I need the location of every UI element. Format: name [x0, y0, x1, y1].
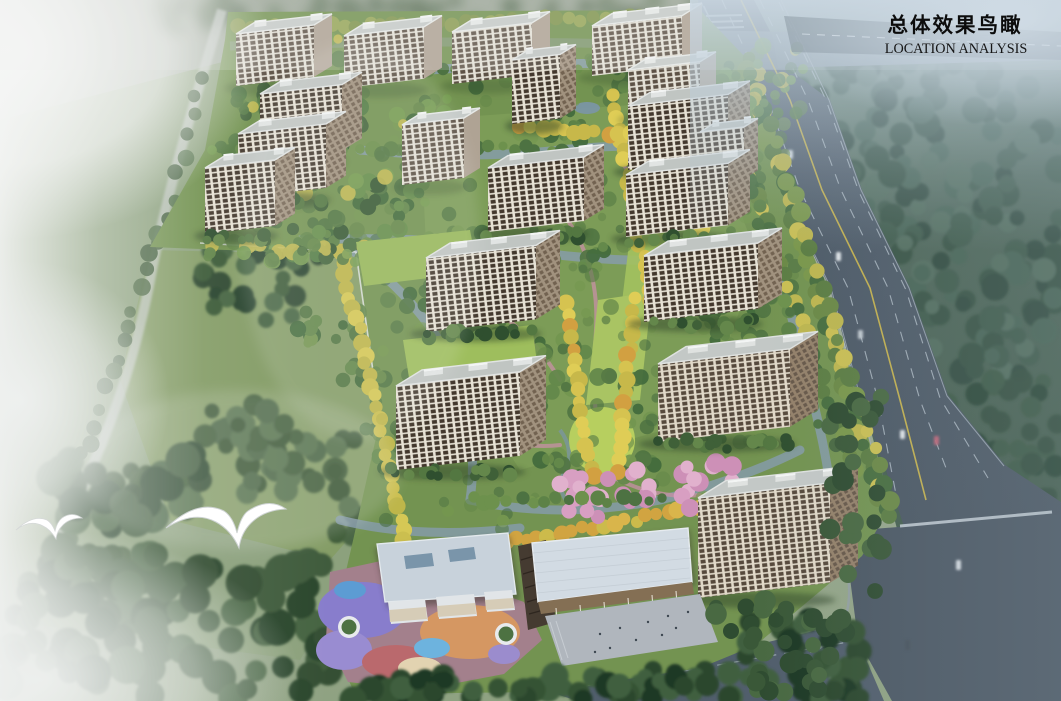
- svg-text:LOCATION ANALYSIS: LOCATION ANALYSIS: [885, 41, 1028, 57]
- svg-text:总体效果鸟瞰: 总体效果鸟瞰: [888, 13, 1023, 37]
